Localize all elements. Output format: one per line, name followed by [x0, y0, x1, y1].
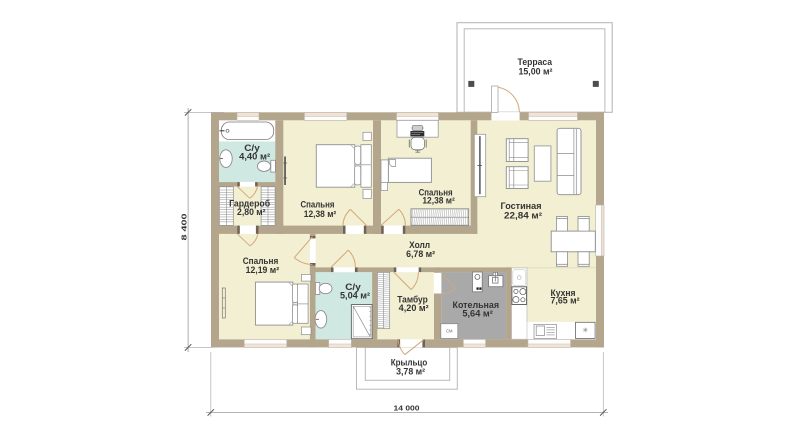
svg-text:22,84 м²: 22,84 м² — [504, 211, 542, 221]
svg-text:Спальня: Спальня — [301, 199, 335, 209]
svg-text:14 000: 14 000 — [394, 404, 420, 413]
svg-text:4,20 м²: 4,20 м² — [399, 303, 429, 313]
svg-text:Гостиная: Гостиная — [501, 201, 542, 211]
svg-text:12,19 м²: 12,19 м² — [246, 265, 280, 275]
svg-text:СМ: СМ — [446, 329, 453, 334]
svg-text:5,64 м²: 5,64 м² — [462, 309, 493, 319]
svg-text:Терраса: Терраса — [518, 57, 553, 67]
svg-text:12,38 м²: 12,38 м² — [422, 195, 455, 205]
svg-text:6,78 м²: 6,78 м² — [406, 249, 435, 259]
svg-text:8 400: 8 400 — [180, 214, 189, 241]
svg-text:3,78 м²: 3,78 м² — [396, 366, 425, 376]
svg-text:5,04 м²: 5,04 м² — [340, 291, 370, 301]
svg-text:✳: ✳ — [582, 326, 588, 334]
svg-text:2,80 м²: 2,80 м² — [237, 207, 266, 217]
svg-text:15,00 м²: 15,00 м² — [519, 67, 553, 77]
svg-text:7,65 м²: 7,65 м² — [551, 296, 580, 306]
svg-text:12,38 м²: 12,38 м² — [304, 209, 337, 219]
svg-text:4,40 м²: 4,40 м² — [239, 151, 270, 161]
